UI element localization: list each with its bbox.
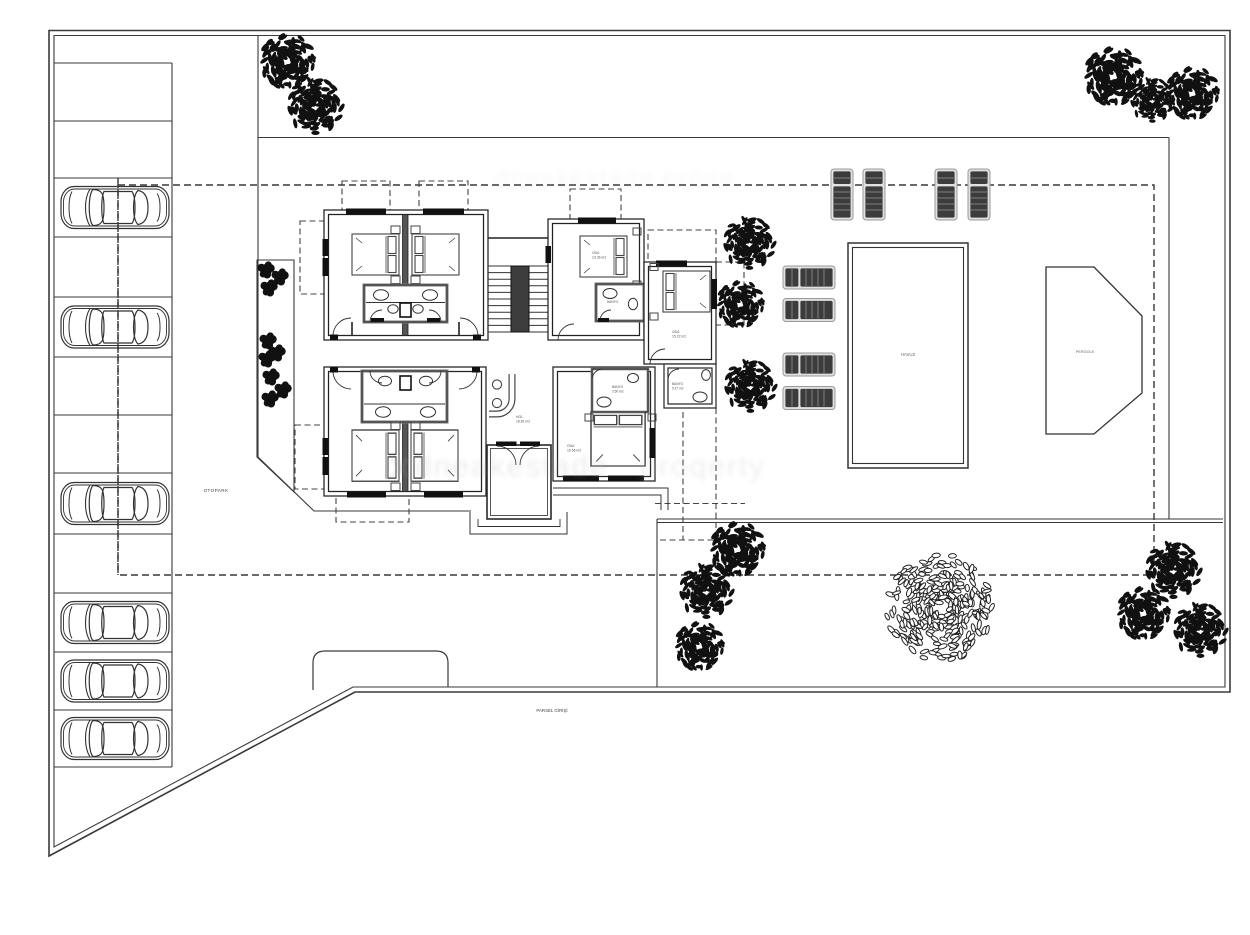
svg-text:dneakestade: dneakestade (415, 450, 609, 483)
svg-text:HOL: HOL (516, 415, 523, 419)
svg-text:BANYO: BANYO (607, 300, 619, 304)
svg-text:BANYO: BANYO (672, 382, 684, 386)
svg-text:PARSEL GİRİŞİ: PARSEL GİRİŞİ (536, 708, 567, 713)
svg-text:HAVUZ: HAVUZ (901, 352, 916, 357)
svg-text:ODA: ODA (592, 251, 600, 255)
svg-text:18.81 m2: 18.81 m2 (516, 420, 530, 424)
svg-text:ODA: ODA (672, 330, 680, 334)
svg-text:BANYO: BANYO (612, 385, 624, 389)
svg-text:ODA: ODA (567, 444, 575, 448)
svg-text:PERGOLE: PERGOLE (1076, 350, 1095, 354)
svg-text:3.50 m2: 3.50 m2 (612, 390, 624, 394)
svg-text:5.27 m2: 5.27 m2 (672, 387, 684, 391)
svg-text:dneakestade proqe: dneakestade proqe (495, 165, 735, 192)
svg-text:x: x (390, 445, 412, 487)
svg-text:13.06 m2: 13.06 m2 (592, 256, 606, 260)
svg-text:15.22 m2: 15.22 m2 (672, 335, 686, 339)
svg-text:OTOPARK: OTOPARK (204, 488, 229, 493)
svg-text:proqerty: proqerty (640, 450, 766, 483)
